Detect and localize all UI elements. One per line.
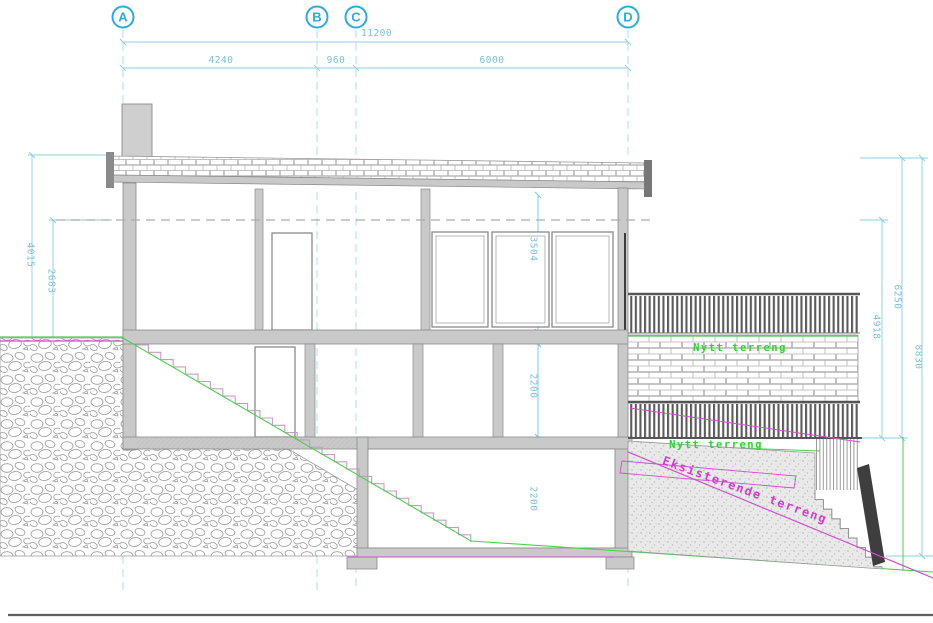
grid-axis-c: C (345, 6, 368, 29)
upper-windows (432, 232, 613, 327)
foundation-wall-left (357, 437, 368, 558)
drawing-linework (0, 0, 933, 623)
grid-axis-d: D (617, 6, 640, 29)
slab-hatch-band (136, 438, 358, 448)
middle-door (255, 347, 295, 437)
roof-edge-right (644, 160, 652, 197)
grid-axis-a: A (112, 6, 135, 29)
dim-interior-upper: 3504 (528, 237, 539, 262)
stair-railing-light (815, 439, 858, 490)
upper-railing (628, 296, 858, 333)
dim-segment-ab: 4240 (209, 55, 234, 66)
column-mid-3 (493, 344, 503, 437)
dim-left-2683: 2683 (46, 269, 57, 294)
new-terrain-label-upper: Nytt terreng (693, 342, 787, 354)
footing-right (606, 557, 634, 569)
dim-right-6250: 6250 (892, 285, 903, 310)
dim-segment-cd: 6000 (480, 55, 505, 66)
chimney (122, 104, 152, 158)
column-mid-2 (413, 344, 423, 437)
section-drawing-canvas: A B C D 11200 4240 960 6000 4015 2683 35… (0, 0, 933, 623)
top-dimension-lines (120, 39, 631, 71)
dim-right-4918: 4918 (871, 315, 882, 340)
column-upper-1 (255, 189, 263, 330)
upper-door (272, 233, 312, 330)
dim-right-8830: 8830 (913, 345, 924, 370)
grid-axis-b: B (306, 6, 329, 29)
new-terrain-label-lower: Nytt terreng (669, 439, 763, 451)
dim-interior-middle: 2200 (528, 374, 539, 399)
lower-railing (628, 404, 858, 437)
dim-overall-width: 11200 (361, 28, 392, 39)
exterior-wall-right (618, 188, 628, 450)
dim-interior-basement: 2200 (528, 487, 539, 512)
right-side-terrain (620, 294, 933, 578)
exterior-wall-left (123, 183, 136, 450)
left-dimension-lines (28, 152, 112, 344)
roof-edge-left (106, 152, 114, 188)
column-upper-2 (421, 189, 430, 330)
footing-left (347, 557, 377, 569)
column-mid-1 (305, 344, 315, 437)
dim-segment-bc: 960 (327, 55, 346, 66)
upper-floor-slab (123, 330, 628, 344)
dim-left-4015: 4015 (25, 243, 36, 268)
